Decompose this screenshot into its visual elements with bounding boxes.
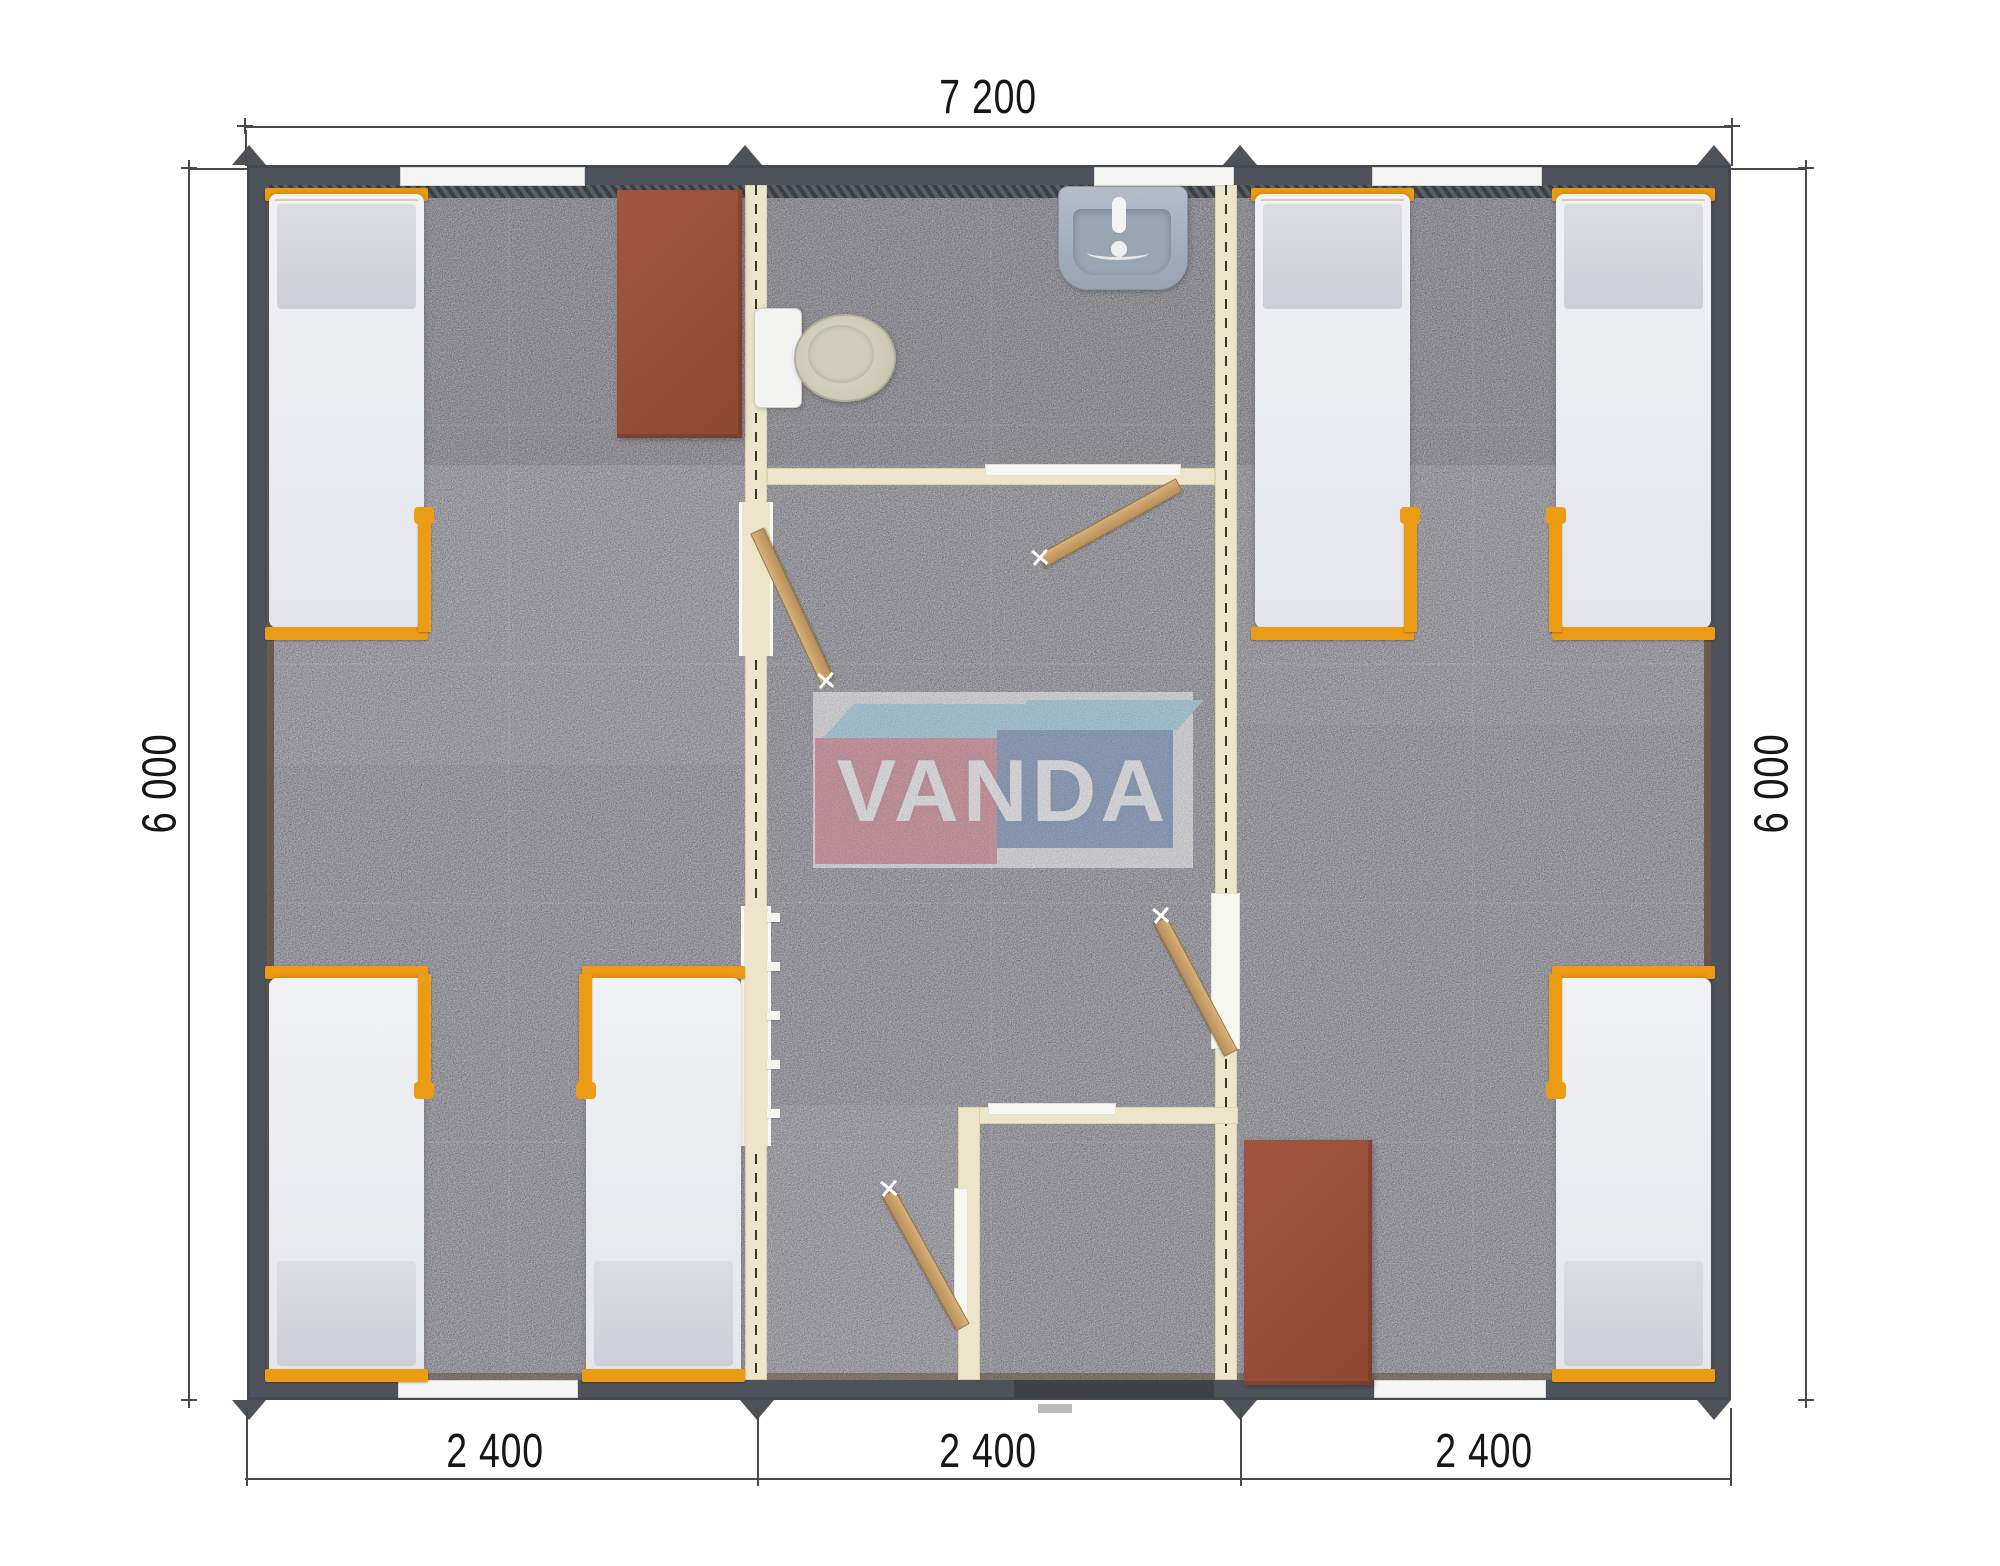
bed-frame-rail <box>579 974 592 1086</box>
bed-frame-knob <box>414 1082 434 1099</box>
bed-frame-knob <box>1546 507 1566 524</box>
dimension-label-module: 2 400 <box>871 1424 1105 1479</box>
bed-mattress <box>586 978 741 1376</box>
bed-mattress <box>269 194 424 628</box>
bed-frame-bar <box>1552 1369 1715 1382</box>
sink-faucet <box>1112 197 1126 233</box>
bed <box>585 966 742 1380</box>
bed-frame-rail <box>418 520 431 632</box>
logo-box-top-face <box>1001 700 1204 730</box>
extension-line <box>1240 1408 1242 1486</box>
bed-frame-rail <box>418 974 431 1086</box>
bed-pillow <box>277 204 416 309</box>
extension-line <box>757 1408 759 1486</box>
dimension-label-width: 7 200 <box>832 70 1144 125</box>
sink <box>1058 186 1188 290</box>
door-opening <box>988 1103 1116 1115</box>
wall-centerline <box>1225 185 1227 1380</box>
dimension-tick <box>181 1392 197 1408</box>
window <box>1094 167 1234 186</box>
bed-frame-knob <box>414 507 434 524</box>
wall-tab <box>767 913 780 922</box>
floor-plan-canvas: VANDA <box>0 0 2000 1566</box>
bed <box>1555 966 1712 1380</box>
toilet <box>750 304 900 410</box>
module-joint-marker <box>1223 145 1257 165</box>
bed-pillow <box>1564 204 1703 309</box>
bed-frame-rail <box>1549 974 1562 1086</box>
wall-tab <box>767 1109 780 1118</box>
dimension-tick <box>181 160 197 176</box>
dimension-tick <box>1798 1392 1814 1408</box>
dimension-line-top <box>245 126 1732 128</box>
module-joint-marker <box>232 1400 266 1420</box>
bed-frame-knob <box>1400 507 1420 524</box>
door-jamb <box>739 502 773 656</box>
extension-line <box>246 1408 248 1486</box>
door-opening <box>985 464 1181 476</box>
wall-lining-bottom <box>267 1373 1711 1380</box>
bed-frame-knob <box>1546 1082 1566 1099</box>
bed-frame-bar <box>265 1369 428 1382</box>
bed-frame-rail <box>1404 520 1417 632</box>
bed <box>268 966 425 1380</box>
dimension-label-module: 2 400 <box>378 1424 612 1479</box>
dimension-tick <box>1798 160 1814 176</box>
module-joint-marker <box>1697 1400 1731 1420</box>
bed-mattress <box>269 978 424 1376</box>
entrance-step <box>1038 1404 1072 1413</box>
extension-line <box>1730 1408 1732 1486</box>
vanda-logo-watermark: VANDA <box>813 692 1193 868</box>
window <box>1372 167 1542 186</box>
bed-mattress <box>1556 978 1711 1376</box>
bed-pillow <box>594 1261 733 1366</box>
bed <box>1254 190 1411 640</box>
extension-line <box>245 130 247 166</box>
bed-frame-bar <box>1251 627 1414 640</box>
bed <box>268 190 425 640</box>
window <box>1374 1380 1546 1398</box>
floor-shade <box>767 1105 957 1380</box>
roof-edge-hatch <box>267 185 1711 198</box>
extension-line <box>190 168 247 170</box>
window <box>398 1380 578 1398</box>
module-joint-marker <box>1697 145 1731 165</box>
bed-frame-bar <box>1552 627 1715 640</box>
dimension-tick <box>1724 118 1740 134</box>
bed-pillow <box>1564 1261 1703 1366</box>
bed-frame-bar <box>582 1369 745 1382</box>
bed-pillow <box>277 1261 416 1366</box>
bed-pillow <box>1263 204 1402 309</box>
entrance-door-threshold <box>1014 1380 1214 1398</box>
wall-tab <box>767 1060 780 1069</box>
dimension-line-left <box>188 168 190 1402</box>
desk <box>617 190 742 438</box>
dimension-tick <box>237 118 253 134</box>
bed-frame-rail <box>1549 520 1562 632</box>
desk <box>1244 1140 1372 1385</box>
bed-frame-knob <box>576 1082 596 1099</box>
bed <box>1555 190 1712 640</box>
wall-tab <box>767 1011 780 1020</box>
dimension-line-right <box>1805 168 1807 1402</box>
module-joint-marker <box>232 145 266 165</box>
bed-mattress <box>1556 194 1711 628</box>
bed-mattress <box>1255 194 1410 628</box>
module-joint-marker <box>728 145 762 165</box>
toilet-bowl <box>794 314 896 402</box>
dimension-label-height-left: 6 000 <box>133 688 188 880</box>
extension-line <box>1731 130 1733 166</box>
wall-tab <box>767 962 780 971</box>
logo-text: VANDA <box>809 740 1197 842</box>
floor-shade <box>267 185 1711 465</box>
dimension-label-module: 2 400 <box>1367 1424 1601 1479</box>
dimension-label-height-right: 6 000 <box>1745 688 1800 880</box>
extension-line <box>1731 168 1805 170</box>
partition-wall-right <box>1215 185 1237 1380</box>
window <box>400 167 585 186</box>
bed-frame-bar <box>265 627 428 640</box>
sink-overflow <box>1087 245 1149 260</box>
